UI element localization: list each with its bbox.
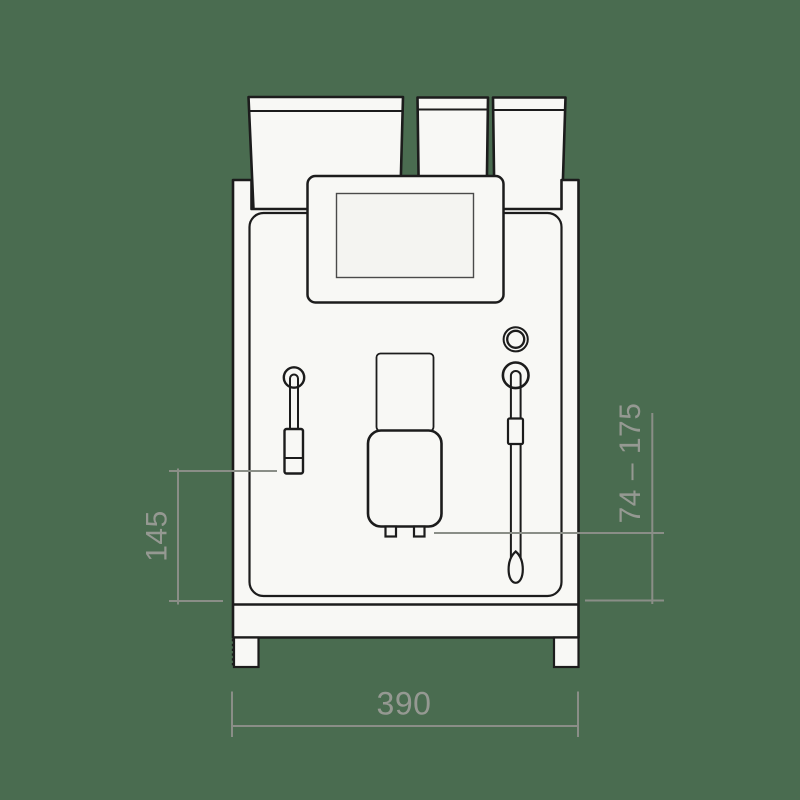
coffee-machine-dimension-diagram: 145 74 – 175 390 (0, 0, 800, 800)
milk-frother-nozzle (285, 429, 304, 474)
dimension-label-390: 390 (377, 686, 432, 722)
dimension-label-145: 145 (141, 510, 174, 562)
coffee-spout-outlet-right (414, 527, 425, 537)
coffee-spout (368, 354, 442, 537)
dimension-label-74-175: 74 – 175 (614, 403, 647, 524)
coffee-spout-outlet-left (386, 527, 397, 537)
power-button (504, 327, 528, 351)
steam-wand-pipe (511, 371, 521, 557)
display-panel (308, 176, 504, 303)
steam-wand-tip (509, 552, 523, 583)
machine-foot-right (554, 638, 579, 668)
display-screen (337, 194, 474, 278)
diagram-canvas: 145 74 – 175 390 (0, 0, 800, 800)
steam-wand-grip (508, 419, 523, 445)
coffee-spout-head (368, 431, 442, 527)
dimension-machine-width: 390 (232, 686, 578, 738)
coffee-spout-column (377, 354, 434, 432)
machine-foot-left (234, 638, 259, 668)
milk-frother-stem (290, 375, 298, 431)
